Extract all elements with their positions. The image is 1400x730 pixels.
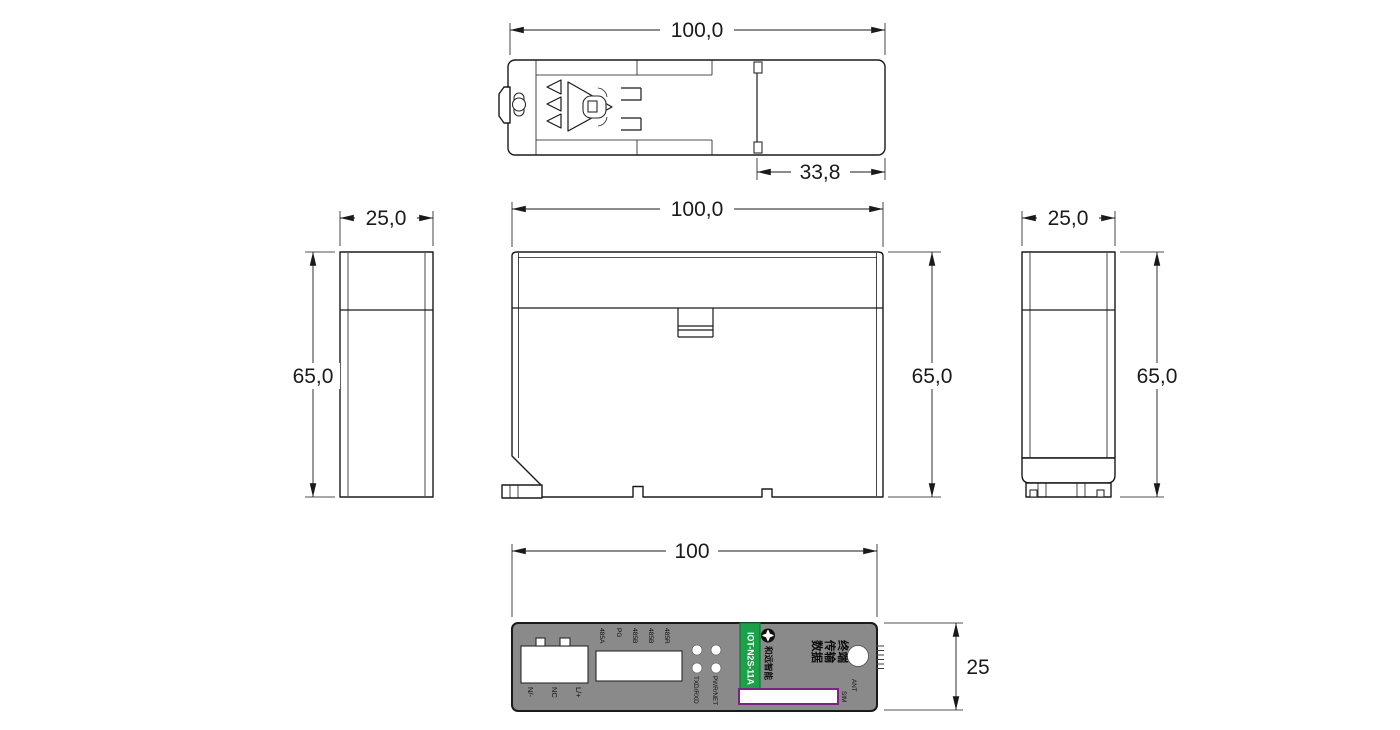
mounting-ear-hole xyxy=(513,98,526,111)
right-side-view-drawing: 25,0 65,0 xyxy=(1022,207,1184,497)
rs485-label-485b: 485B xyxy=(631,628,638,644)
dim-top-width-text: 100,0 xyxy=(671,19,724,42)
power-terminal-tab xyxy=(560,638,570,646)
power-terminal-block xyxy=(521,646,588,683)
top-view-drawing: 100,0 33,8 xyxy=(499,17,885,184)
led-label-txd-rxd: TXD/RXD xyxy=(692,676,699,704)
right-view-clip-notch xyxy=(1097,490,1104,497)
clip-latch-tongue xyxy=(588,101,597,112)
sim-label: SIM xyxy=(840,691,847,702)
product-name-line1: 数据 xyxy=(810,640,824,663)
dim-panel-height-text: 25 xyxy=(966,656,989,679)
dim-left-width-text: 25,0 xyxy=(366,207,407,230)
left-view-body xyxy=(340,252,433,497)
left-side-view-drawing: 25,0 65,0 xyxy=(287,207,433,497)
dim-panel-width-text: 100 xyxy=(674,540,709,563)
top-view-divider-notch xyxy=(754,142,762,153)
dim-left-height: 65,0 xyxy=(287,252,340,497)
top-view-divider-notch xyxy=(754,62,762,73)
dim-front-width: 100,0 xyxy=(512,196,883,247)
bottom-panel-drawing: N/- NC L/+ 485A PG 485B 485B 485R TXD/RX… xyxy=(512,539,990,711)
mounting-ear xyxy=(499,87,510,123)
antenna-hole xyxy=(848,646,869,667)
dim-left-height-text: 65,0 xyxy=(293,365,334,388)
antenna-label: ANT xyxy=(850,679,857,692)
dim-right-height: 65,0 xyxy=(1120,252,1184,497)
dim-front-height-text: 65,0 xyxy=(912,365,953,388)
front-view-body xyxy=(512,252,883,497)
engineering-drawing-sheet: 100,0 33,8 25,0 65,0 xyxy=(0,0,1400,730)
product-name: 数据 传输 终端 xyxy=(810,639,850,663)
right-view-foot xyxy=(1022,458,1115,483)
dim-left-width: 25,0 xyxy=(340,207,433,246)
dim-right-width-text: 25,0 xyxy=(1048,207,1089,230)
dim-top-width: 100,0 xyxy=(510,17,885,55)
dim-panel-width: 100 xyxy=(512,539,877,617)
sim-slot xyxy=(739,689,838,704)
dim-front-width-text: 100,0 xyxy=(671,198,724,221)
power-label-n: N/- xyxy=(526,687,535,698)
rs485-label-485b2: 485B xyxy=(647,628,654,644)
power-terminal-tab xyxy=(536,638,545,646)
led-indicator-pwr xyxy=(711,645,721,655)
product-name-line2: 传输 xyxy=(823,639,837,663)
heyuan-flower-logo-icon xyxy=(761,629,775,643)
led-label-pwr-net: PWR/NET xyxy=(711,676,718,705)
rs485-label-485r: 485R xyxy=(663,628,670,644)
model-label-text: IOT-N2S-11A xyxy=(746,632,756,685)
dim-front-height: 65,0 xyxy=(888,252,959,497)
front-view-drawing: 100,0 65,0 xyxy=(502,196,959,498)
led-indicator-txd xyxy=(692,645,702,655)
dim-top-clip-text: 33,8 xyxy=(800,161,841,184)
rs485-terminal-block xyxy=(596,651,682,681)
dim-top-clip-offset: 33,8 xyxy=(757,158,885,184)
power-label-nc: NC xyxy=(550,687,559,698)
top-view-body xyxy=(508,60,885,155)
led-indicator-rxd xyxy=(692,663,702,673)
product-name-line3: 终端 xyxy=(836,640,850,663)
rs485-label-485a: 485A xyxy=(598,628,605,644)
right-view-clip-notch xyxy=(1030,490,1037,497)
led-indicator-net xyxy=(711,663,721,673)
clip-release-handle xyxy=(502,485,542,498)
rs485-label-pg: PG xyxy=(615,628,622,638)
brand-name: 和远智能 xyxy=(763,646,774,681)
dim-right-width: 25,0 xyxy=(1022,207,1115,246)
power-label-l: L/+ xyxy=(574,687,583,698)
dim-right-height-text: 65,0 xyxy=(1137,365,1178,388)
right-view-body xyxy=(1022,252,1115,458)
dim-panel-height: 25 xyxy=(884,623,990,710)
